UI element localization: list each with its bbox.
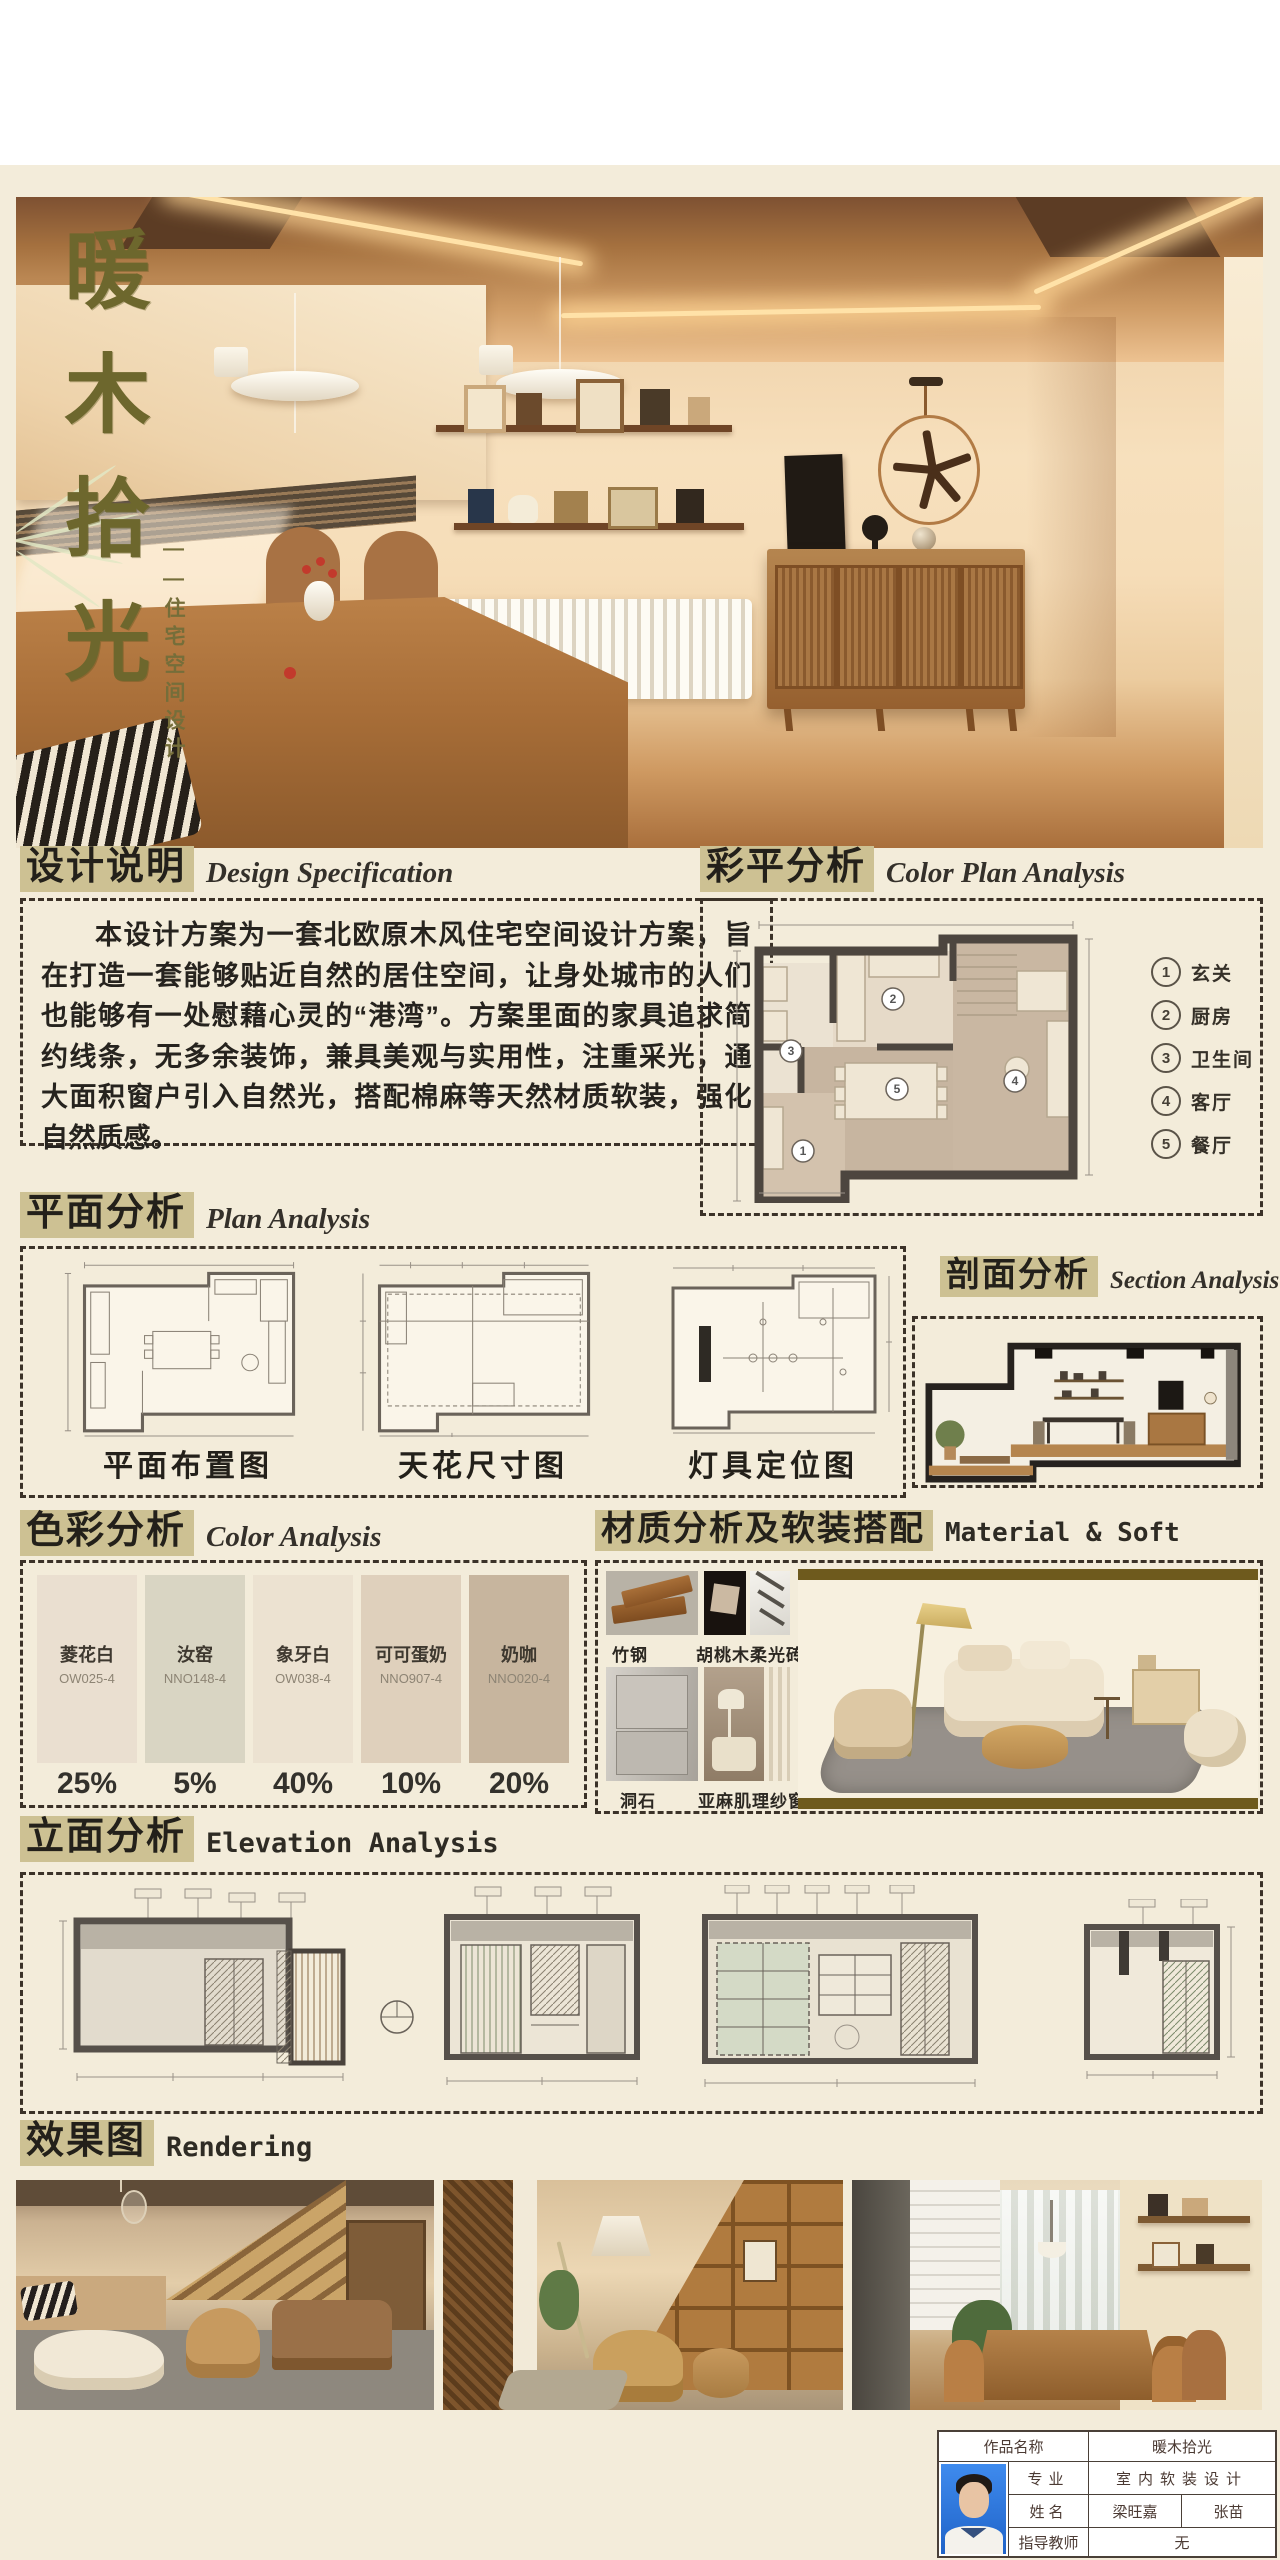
shelf-vase: [508, 495, 538, 523]
decor-sphere: [912, 527, 936, 551]
heading-color-en: Color Analysis: [206, 1521, 381, 1556]
swatch-name: 菱花白: [37, 1641, 137, 1667]
swatch-percent: 5%: [145, 1767, 245, 1801]
plan-figure-label: 天花尺寸图: [348, 1441, 618, 1485]
wall-clock: [878, 415, 980, 525]
swatch-name: 可可蛋奶: [361, 1641, 461, 1667]
pendant-bulb: [121, 2190, 147, 2224]
heading-color-plan-zh: 彩平分析: [700, 846, 874, 892]
coffee-table: [982, 1725, 1068, 1769]
side-table-leg: [1106, 1697, 1109, 1739]
info-major-label: 专业: [1009, 2462, 1089, 2495]
clock-cap: [909, 377, 943, 386]
swatch-percent: 25%: [37, 1767, 137, 1801]
swatch-name: 奶咖: [469, 1641, 569, 1667]
svg-text:1: 1: [800, 1144, 807, 1158]
info-table: 作品名称 暖木拾光 专业 室内软装设计 姓名 梁旺嘉 张苗 指导教师 无: [937, 2430, 1277, 2558]
plan-figure-ceiling: [348, 1259, 618, 1437]
pendant-shade: [1038, 2242, 1066, 2258]
svg-text:2: 2: [890, 992, 897, 1006]
legend-item: 2 厨房: [1151, 1000, 1254, 1030]
shelf-frame: [1152, 2242, 1180, 2268]
wood-sofa: [272, 2300, 392, 2370]
info-work-value: 暖木拾光: [1089, 2432, 1275, 2462]
lamp-cone-shade: [591, 2216, 651, 2256]
info-name-2: 张苗: [1182, 2495, 1275, 2528]
wall-shelf: [1138, 2216, 1250, 2223]
swatch-percent: 20%: [469, 1767, 569, 1801]
console-decor: [1138, 1655, 1156, 1669]
ceiling-beam: [1016, 197, 1221, 257]
white-sofa: [34, 2330, 164, 2390]
rattan-chair: [186, 2308, 260, 2378]
plan-figure-layout: [53, 1259, 323, 1437]
id-photo-cell: [939, 2462, 1009, 2556]
color-box: 菱花白 OW025-4 汝窑 NNO148-4 象牙白 OW038-4 可可蛋奶…: [20, 1560, 587, 1808]
elevation-drawing-3: [687, 1885, 1007, 2097]
color-swatch: 汝窑 NNO148-4: [145, 1575, 245, 1763]
legend-label: 卫生间: [1191, 1045, 1254, 1072]
color-swatch: 可可蛋奶 NNO907-4: [361, 1575, 461, 1763]
heading-design-spec-en: Design Specification: [206, 857, 453, 892]
heading-color-plan: 彩平分析 Color Plan Analysis: [700, 846, 1125, 892]
elevation-box: [20, 1872, 1263, 2114]
shelf-decor: [554, 491, 588, 523]
info-name-1: 梁旺嘉: [1089, 2495, 1182, 2528]
plan-box: 平面布置图 天花尺寸图: [20, 1246, 906, 1498]
shelf-decor: [516, 393, 542, 425]
heading-material-zh: 材质分析及软装搭配: [595, 1510, 933, 1551]
artwork: [784, 454, 845, 556]
heading-color-zh: 色彩分析: [20, 1510, 194, 1556]
heading-design-spec: 设计说明 Design Specification: [20, 846, 453, 892]
id-photo: [941, 2464, 1006, 2554]
window-light-strip: [1224, 257, 1263, 848]
shelf-decor: [640, 389, 670, 425]
svg-text:4: 4: [1012, 1074, 1019, 1088]
plan-figure-lighting: [643, 1259, 903, 1437]
wall-shelf: [454, 523, 744, 530]
material-label: 洞石: [620, 1787, 656, 1812]
shelf-decor: [608, 487, 658, 529]
bean-bag: [1184, 1709, 1246, 1767]
color-floor-plan: 1 2 3 4 5: [717, 911, 1117, 1203]
legend-number: 1: [1151, 957, 1181, 987]
plan-figure-label: 平面布置图: [53, 1441, 323, 1485]
elevation-marker: [375, 1995, 419, 2039]
heading-material: 材质分析及软装搭配 Material & Soft: [595, 1510, 1180, 1551]
heading-plan: 平面分析 Plan Analysis: [20, 1192, 370, 1238]
legend-label: 玄关: [1191, 959, 1233, 986]
color-swatch: 奶咖 NNO020-4: [469, 1575, 569, 1763]
legend-number: 4: [1151, 1086, 1181, 1116]
material-thumb-walnut: [704, 1571, 746, 1635]
swatch-code: NNO907-4: [361, 1671, 461, 1686]
info-name-label: 姓名: [1009, 2495, 1089, 2528]
brick-wall: [443, 2180, 513, 2410]
heading-elevation-zh: 立面分析: [20, 1816, 194, 1862]
plant: [539, 2270, 579, 2330]
pendant-cord: [120, 2180, 122, 2192]
shelf-decor: [1182, 2198, 1208, 2216]
elevation-drawing-2: [427, 1885, 657, 2097]
legend-item: 1 玄关: [1151, 957, 1254, 987]
legend-label: 客厅: [1191, 1088, 1233, 1115]
heading-section-en: Section Analysis: [1110, 1267, 1279, 1297]
shelf-decor: [1196, 2244, 1214, 2264]
hero-title: 暖木拾光: [56, 225, 142, 721]
elevation-drawing-1: [53, 1885, 363, 2097]
pendant-cord: [1050, 2200, 1053, 2244]
color-swatch: 象牙白 OW038-4: [253, 1575, 353, 1763]
heading-material-en: Material & Soft: [945, 1518, 1180, 1551]
swatch-code: OW025-4: [37, 1671, 137, 1686]
hero-subtitle: ——住宅空间设计: [158, 537, 188, 765]
render-attic-nook: [443, 2180, 843, 2410]
heading-section: 剖面分析 Section Analysis: [940, 1256, 1279, 1297]
shelf-decor: [468, 489, 494, 523]
shelf-frame: [576, 379, 624, 433]
round-side-table: [693, 2348, 749, 2398]
shelf-frame: [464, 385, 506, 433]
wall-shadow: [1026, 317, 1116, 737]
design-spec-text: 本设计方案为一套北欧原木风住宅空间设计方案，旨在打造一套能够贴近自然的居住空间，…: [41, 915, 752, 1158]
render-ceiling: [16, 2180, 434, 2206]
svg-text:5: 5: [894, 1082, 901, 1096]
sofa-pillow: [958, 1645, 1012, 1671]
dining-chair: [1182, 2330, 1226, 2400]
shelf-decor: [1148, 2194, 1168, 2216]
dining-chair: [944, 2340, 984, 2402]
heading-color: 色彩分析 Color Analysis: [20, 1510, 381, 1556]
color-swatch: 菱花白 OW025-4: [37, 1575, 137, 1763]
material-thumb-travertine: [606, 1667, 698, 1781]
fridge-column: [852, 2180, 910, 2410]
pendant-cord: [559, 257, 561, 377]
heading-rendering: 效果图 Rendering: [20, 2120, 312, 2166]
swatch-name: 象牙白: [253, 1641, 353, 1667]
vase: [304, 581, 334, 621]
elevation-drawing-4: [1063, 1899, 1243, 2089]
sideboard: [767, 549, 1025, 709]
heading-rendering-zh: 效果图: [20, 2120, 154, 2166]
render-living-stairs: [16, 2180, 434, 2410]
clock-rod: [924, 383, 927, 417]
section-box: [912, 1316, 1263, 1488]
legend-number: 2: [1151, 1000, 1181, 1030]
legend-item: 5 餐厅: [1151, 1129, 1254, 1159]
material-thumb-bamboo: [606, 1571, 698, 1635]
decor-bar: [798, 1569, 1258, 1580]
section-drawing: [919, 1321, 1257, 1483]
legend-label: 厨房: [1191, 1002, 1233, 1029]
soft-furnishing-image: [798, 1569, 1258, 1809]
swatch-code: NNO148-4: [145, 1671, 245, 1686]
svg-text:3: 3: [788, 1044, 795, 1058]
heading-elevation-en: Elevation Analysis: [206, 1828, 499, 1862]
material-thumb-linen-curtain: [704, 1667, 790, 1781]
heading-rendering-en: Rendering: [166, 2132, 312, 2166]
material-label: 柔光砖: [750, 1641, 804, 1666]
info-advisor-value: 无: [1089, 2528, 1275, 2556]
material-label: 竹钢: [612, 1641, 648, 1666]
dining-table: [972, 2330, 1162, 2400]
legend-label: 餐厅: [1191, 1131, 1233, 1158]
sheer-curtain: [1002, 2190, 1118, 2340]
material-label: 亚麻肌理纱窗: [698, 1787, 806, 1812]
info-work-label: 作品名称: [939, 2432, 1089, 2462]
decor-bar: [798, 1798, 1258, 1809]
material-thumb-tile: [750, 1571, 790, 1635]
color-plan-box: 1 2 3 4 5 1 玄关 2 厨房 3 卫生间 4 客厅 5 餐厅: [700, 898, 1263, 1216]
heading-design-spec-zh: 设计说明: [20, 846, 194, 892]
legend-number: 5: [1151, 1129, 1181, 1159]
info-major-value: 室内软装设计: [1089, 2462, 1275, 2495]
swatch-percent: 10%: [361, 1767, 461, 1801]
shelf-art: [743, 2240, 777, 2282]
heading-section-zh: 剖面分析: [940, 1256, 1098, 1297]
legend-number: 3: [1151, 1043, 1181, 1073]
heading-color-plan-en: Color Plan Analysis: [886, 857, 1125, 892]
info-advisor-label: 指导教师: [1009, 2528, 1089, 2556]
legend-item: 3 卫生间: [1151, 1043, 1254, 1073]
plan-figure-label: 灯具定位图: [643, 1441, 903, 1485]
swatch-percent: 40%: [253, 1767, 353, 1801]
material-label: 胡桃木: [696, 1641, 750, 1666]
render-dining: [852, 2180, 1262, 2410]
heading-elevation: 立面分析 Elevation Analysis: [20, 1816, 499, 1862]
swatch-code: NNO020-4: [469, 1671, 569, 1686]
swatch-name: 汝窑: [145, 1641, 245, 1667]
sofa-pillow: [1020, 1641, 1070, 1669]
shelf-decor: [676, 489, 704, 523]
legend-item: 4 客厅: [1151, 1086, 1254, 1116]
shelf-decor: [688, 397, 710, 425]
design-spec-box: 本设计方案为一套北欧原木风住宅空间设计方案，旨在打造一套能够贴近自然的居住空间，…: [20, 898, 773, 1146]
pendant-cord: [294, 293, 296, 433]
hero-image: 暖木拾光 ——住宅空间设计: [16, 197, 1263, 848]
color-plan-legend: 1 玄关 2 厨房 3 卫生间 4 客厅 5 餐厅: [1151, 957, 1254, 1172]
lounge-chair: [834, 1689, 912, 1759]
swatch-code: OW038-4: [253, 1671, 353, 1686]
material-box: 竹钢 胡桃木 柔光砖 洞石 亚麻肌理纱窗: [595, 1560, 1263, 1814]
heading-plan-zh: 平面分析: [20, 1192, 194, 1238]
rug: [496, 2370, 631, 2410]
heading-plan-en: Plan Analysis: [206, 1203, 370, 1238]
poster: 暖木拾光 ——住宅空间设计 设计说明 Design Specification …: [0, 0, 1280, 2560]
